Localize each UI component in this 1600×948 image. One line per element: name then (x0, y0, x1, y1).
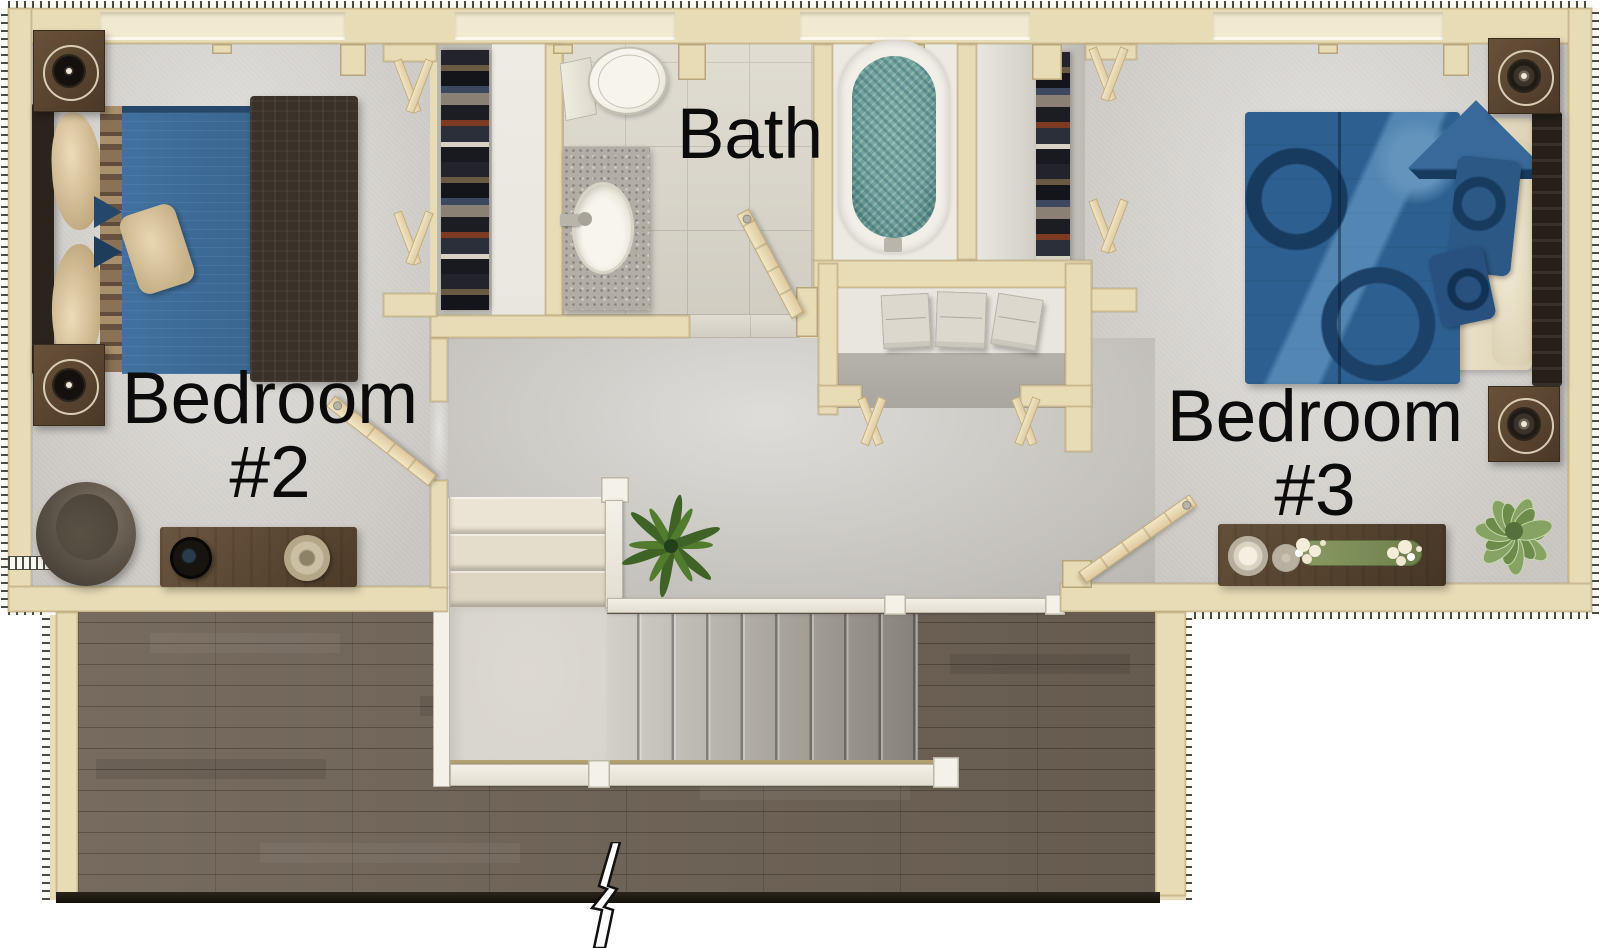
wall-right (1568, 8, 1592, 612)
wall-left (8, 8, 32, 612)
bath-door-threshold (688, 315, 800, 338)
bath-faucet-knob (578, 212, 592, 226)
bedroom3-label: Bedroom #3 (1130, 380, 1500, 528)
exterior-edge-right (1592, 8, 1599, 614)
wood-plank-shade (96, 759, 326, 779)
wood-plank-highlight (150, 633, 340, 653)
wall-linen-top (813, 260, 1092, 288)
exterior-strip-right-lower (1186, 612, 1192, 900)
stair-upper-tread-3 (450, 571, 607, 607)
speaker-center (1521, 421, 1527, 427)
closet2-hanging-clothes (441, 50, 489, 310)
towel-stack (935, 291, 987, 349)
exterior-strip-left-lower (42, 612, 50, 900)
hallway-potted-palm (618, 494, 724, 598)
bedroom3-duvet-fold-line (1338, 112, 1341, 384)
stair-upper-tread-2 (450, 534, 607, 571)
speaker-center (1521, 73, 1527, 79)
linen-bifold-door (1008, 398, 1044, 450)
flower-cluster (1296, 538, 1310, 552)
bedroom2-nightstand-speaker (33, 30, 105, 112)
wall-tub-east (957, 44, 977, 260)
wood-plank-shade (950, 654, 1130, 674)
break-line-symbol (586, 842, 626, 948)
wall-pier (340, 44, 366, 76)
floor-plan: Bedroom #2 Bath Bedroom #3 (0, 0, 1600, 948)
wall-mullion (1318, 44, 1338, 54)
towel-stack (990, 293, 1044, 352)
bedroom2-label-line1: Bedroom (122, 358, 418, 439)
stair-rail-south (450, 764, 948, 786)
wall-mullion (212, 44, 232, 54)
closet2-bifold-door (390, 60, 437, 116)
wall-pier (1032, 44, 1062, 80)
window-bath-tub (800, 12, 1030, 40)
plant-leaf (629, 541, 671, 549)
bathtub-water (852, 56, 936, 238)
bedroom2-headboard (32, 103, 54, 375)
wall-bedroom3-west (1065, 263, 1092, 452)
stair-landing (450, 607, 607, 767)
bedroom2-candle-lamp (284, 535, 330, 581)
bedroom3-candle (1228, 536, 1268, 576)
stair-rail-south-post (588, 760, 610, 788)
bath-label: Bath (655, 98, 845, 172)
closet3-hanging-clothes (1036, 52, 1070, 294)
closet3-bifold-door (1085, 48, 1132, 104)
bedroom2-brown-blanket (250, 96, 358, 382)
closet3-bifold-door (1085, 200, 1132, 256)
bath-label-text: Bath (677, 95, 823, 174)
bedroom3-headboard (1532, 112, 1562, 386)
wood-plank-highlight (260, 843, 520, 863)
bedroom3-label-line1: Bedroom (1167, 376, 1463, 457)
bedroom2-decor-bowl (170, 537, 212, 579)
bedroom2-label-line2: #2 (229, 432, 310, 513)
closet2-stub-bottom (383, 293, 437, 317)
stair-rail-north (607, 598, 1065, 613)
stair-newel-bottom (933, 757, 959, 788)
stair-upper-tread-1 (450, 497, 607, 534)
closet2-shelf-strip (492, 44, 545, 315)
exterior-edge-left (1, 8, 8, 608)
exterior-edge-bottom-right (1186, 612, 1592, 619)
linen-bifold-door (854, 398, 890, 450)
bedroom2-label: Bedroom #2 (95, 362, 445, 510)
closet3-stub-bottom (1085, 288, 1137, 312)
window-bedroom3 (1213, 12, 1443, 40)
towel-stack (881, 293, 932, 349)
exterior-edge-top (8, 1, 1592, 8)
wall-pier (1443, 44, 1469, 76)
wall-bottom-bedroom2 (8, 586, 448, 612)
wall-lower-left (56, 612, 78, 896)
closet2-bifold-door (390, 212, 437, 268)
bedroom3-label-line2: #3 (1274, 450, 1355, 531)
flower-cluster (1398, 540, 1412, 554)
stair-rail-north-post (884, 594, 906, 615)
wall-bath-south (430, 315, 690, 338)
window-bedroom2 (100, 12, 345, 40)
wall-lower-right (1155, 612, 1186, 896)
wall-pier (678, 44, 706, 80)
bathtub-faucet (884, 238, 902, 252)
speaker-center (66, 382, 72, 388)
window-closet-bath (455, 12, 675, 40)
speaker-center (66, 68, 72, 74)
bath-sink (572, 182, 634, 274)
bath-faucet (560, 214, 580, 226)
stair-main-flight (607, 614, 918, 766)
bedroom3-nightstand-speaker (1488, 38, 1560, 114)
